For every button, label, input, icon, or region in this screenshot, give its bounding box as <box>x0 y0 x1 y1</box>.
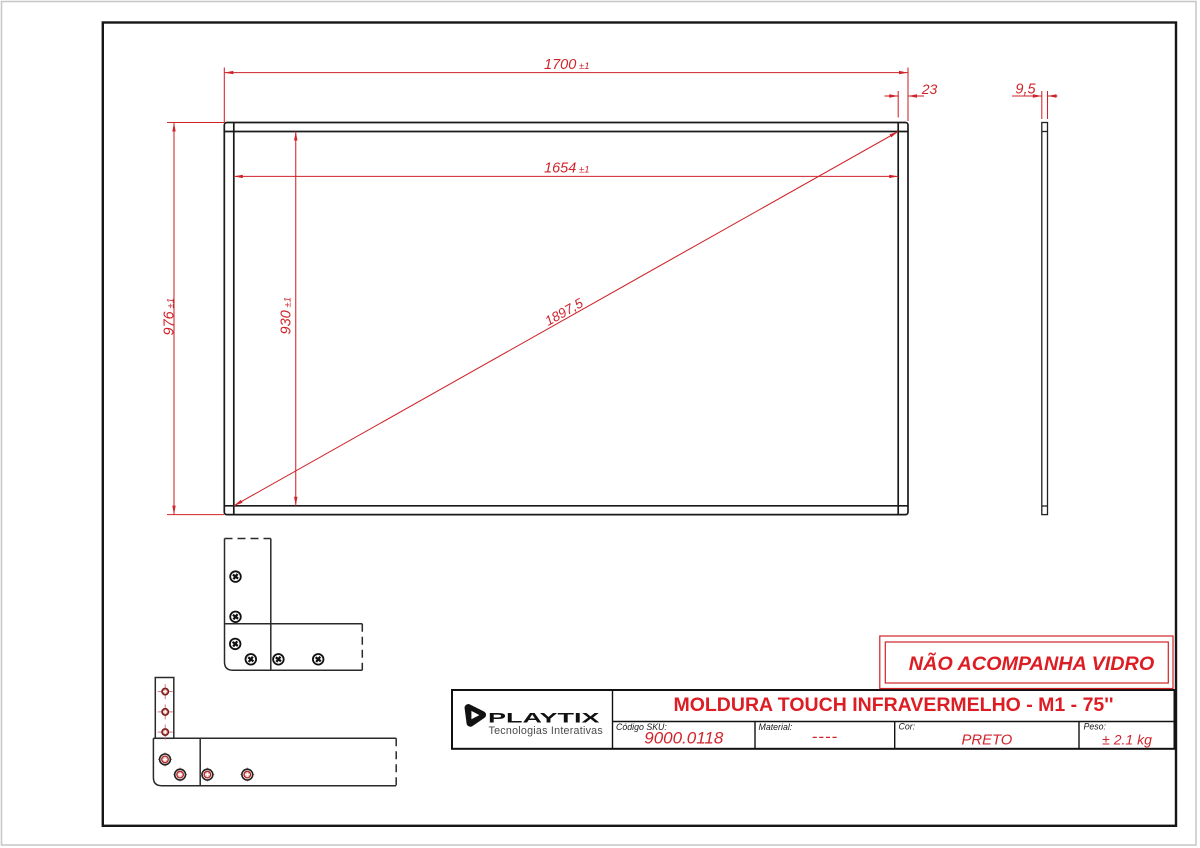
svg-text:±1: ±1 <box>579 61 590 72</box>
svg-text:± 2.1 kg: ± 2.1 kg <box>1102 732 1152 748</box>
svg-text:9000.0118: 9000.0118 <box>644 729 724 748</box>
svg-text:----: ---- <box>812 727 839 746</box>
svg-text:1654: 1654 <box>544 161 576 177</box>
svg-text:9,5: 9,5 <box>1015 82 1036 98</box>
svg-text:930: 930 <box>279 310 295 334</box>
svg-text:976: 976 <box>162 310 178 335</box>
svg-text:±1: ±1 <box>579 165 590 176</box>
svg-text:23: 23 <box>921 81 938 97</box>
svg-text:Material:: Material: <box>759 722 793 732</box>
svg-text:±1: ±1 <box>166 298 177 309</box>
svg-text:PLAYTIX: PLAYTIX <box>488 710 600 726</box>
svg-text:Tecnologias Interativas: Tecnologias Interativas <box>489 725 603 737</box>
svg-text:Cor:: Cor: <box>899 722 916 732</box>
svg-text:PRETO: PRETO <box>962 733 1013 749</box>
svg-text:±1: ±1 <box>283 297 294 308</box>
svg-text:Peso:: Peso: <box>1084 722 1107 732</box>
svg-text:NÃO ACOMPANHA VIDRO: NÃO ACOMPANHA VIDRO <box>909 652 1155 675</box>
svg-text:1700: 1700 <box>544 57 576 73</box>
svg-text:MOLDURA TOUCH INFRAVERMELHO -: MOLDURA TOUCH INFRAVERMELHO - M1 - 75'' <box>673 694 1113 716</box>
